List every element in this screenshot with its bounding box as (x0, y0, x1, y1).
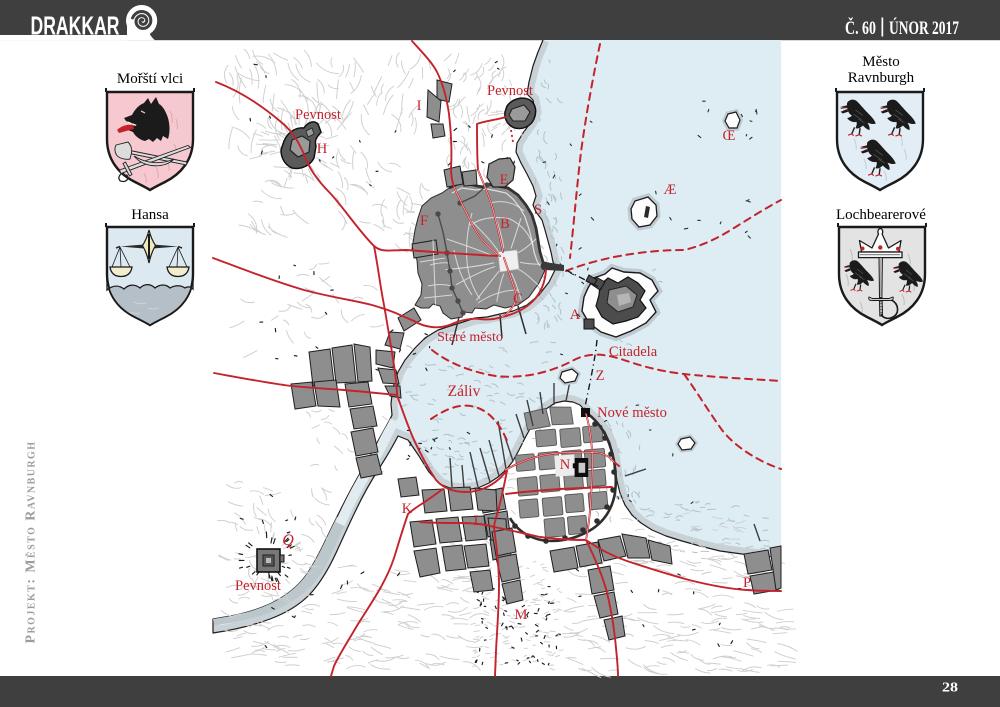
svg-text:N: N (560, 457, 571, 473)
svg-text:B: B (500, 216, 510, 232)
svg-text:DRAKKAR: DRAKKAR (31, 11, 120, 41)
svg-text:Mořští vlci: Mořští vlci (117, 71, 183, 87)
svg-text:L: L (474, 513, 483, 529)
svg-text:A: A (570, 307, 581, 323)
svg-text:Nové město: Nové město (597, 405, 667, 421)
svg-text:H: H (317, 141, 328, 157)
svg-text:Q: Q (282, 532, 294, 549)
svg-text:Æ: Æ (664, 182, 677, 198)
svg-text:S: S (534, 202, 542, 218)
svg-text:Pevnost: Pevnost (295, 107, 341, 123)
svg-text:Město: Město (862, 54, 900, 70)
svg-text:Œ: Œ (723, 128, 736, 144)
svg-text:Hansa: Hansa (131, 207, 169, 223)
svg-text:P: P (743, 575, 751, 591)
svg-text:Č. 60: Č. 60 (845, 17, 876, 39)
svg-text:M: M (515, 607, 528, 623)
svg-text:Pevnost: Pevnost (235, 578, 281, 594)
svg-text:E: E (500, 172, 509, 188)
svg-text:28: 28 (942, 681, 958, 696)
svg-text:ÚNOR 2017: ÚNOR 2017 (889, 17, 959, 39)
svg-text:F: F (420, 213, 428, 229)
svg-text:C: C (513, 291, 523, 307)
svg-text:Staré město: Staré město (437, 330, 503, 345)
svg-text:Z: Z (596, 368, 605, 384)
svg-text:K: K (402, 501, 413, 517)
svg-text:Citadela: Citadela (609, 344, 658, 360)
svg-text:Ravnburgh: Ravnburgh (848, 70, 915, 86)
svg-text:Projekt: Město Ravnburgh: Projekt: Město Ravnburgh (24, 440, 39, 643)
svg-text:Záliv: Záliv (448, 383, 481, 400)
svg-text:I: I (417, 98, 422, 114)
svg-text:Lochbearerové: Lochbearerové (836, 207, 926, 223)
svg-text:Pevnost: Pevnost (487, 83, 533, 99)
